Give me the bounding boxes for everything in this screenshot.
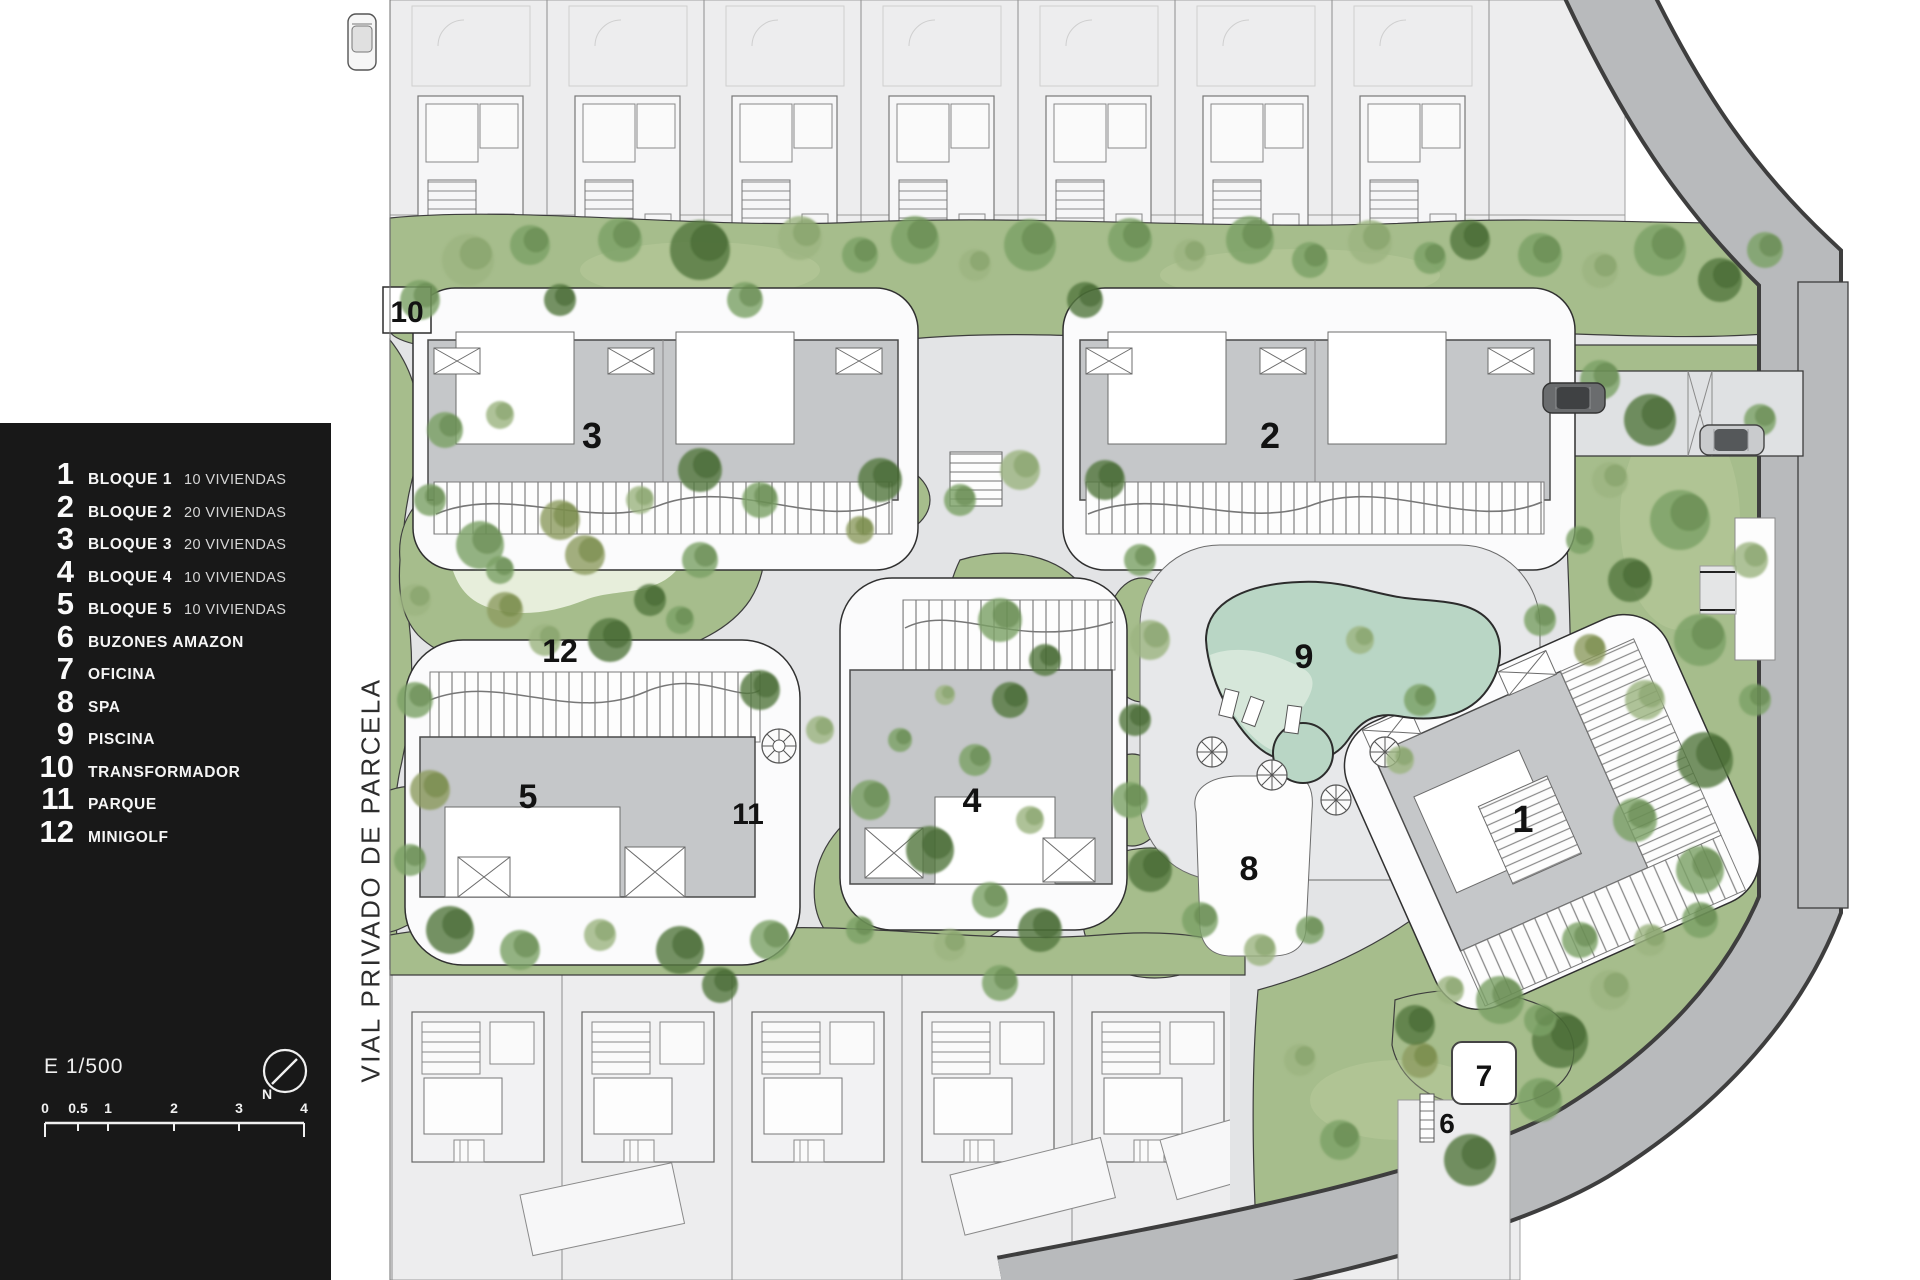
legend-number: 2 xyxy=(0,492,88,522)
tree-icon xyxy=(1590,970,1630,1010)
tree-icon xyxy=(1574,634,1606,666)
tree-icon xyxy=(702,967,738,1003)
tree-icon xyxy=(427,412,463,448)
tree-icon xyxy=(1402,1042,1438,1078)
label-spa: 8 xyxy=(1240,850,1259,888)
tree-icon xyxy=(978,598,1022,642)
legend-item: 10TRANSFORMADOR xyxy=(0,752,331,785)
tree-icon xyxy=(846,916,874,944)
tree-icon xyxy=(1676,846,1724,894)
label-parque: 11 xyxy=(732,798,764,831)
tree-icon xyxy=(1698,258,1742,302)
tree-icon xyxy=(1296,916,1324,944)
scale-bar: 0 0.5 1 2 3 4 xyxy=(36,1095,321,1146)
tree-icon xyxy=(891,216,939,264)
tree-icon xyxy=(598,218,642,262)
tree-icon xyxy=(727,282,763,318)
tree-icon xyxy=(1124,544,1156,576)
tree-icon xyxy=(1739,684,1771,716)
tree-icon xyxy=(906,826,954,874)
tree-icon xyxy=(500,930,540,970)
legend-sublabel: 10 VIVIENDAS xyxy=(184,472,286,488)
legend-label: MINIGOLF xyxy=(88,829,169,847)
tree-icon xyxy=(1592,462,1628,498)
tree-icon xyxy=(846,516,874,544)
legend-number: 12 xyxy=(0,817,88,847)
tree-icon xyxy=(934,929,966,961)
tree-icon xyxy=(656,926,704,974)
tree-icon xyxy=(1004,219,1056,271)
tree-icon xyxy=(959,744,991,776)
tree-icon xyxy=(1244,934,1276,966)
car-icon xyxy=(348,14,376,70)
tree-icon xyxy=(1682,902,1718,938)
tree-icon xyxy=(399,584,431,616)
legend-item: 7OFICINA xyxy=(0,654,331,687)
tree-icon xyxy=(544,284,576,316)
legend-item: 8SPA xyxy=(0,687,331,720)
legend-label: BLOQUE 5 xyxy=(88,601,172,619)
tree-icon xyxy=(1476,976,1524,1024)
tree-icon xyxy=(742,482,778,518)
legend-panel: 1BLOQUE 110 VIVIENDAS 2BLOQUE 220 VIVIEN… xyxy=(0,423,331,1280)
tree-icon xyxy=(540,500,580,540)
tree-icon xyxy=(1067,282,1103,318)
tree-icon xyxy=(806,716,834,744)
tree-icon xyxy=(750,920,790,960)
tree-icon xyxy=(1395,1005,1435,1045)
legend-label: BLOQUE 2 xyxy=(88,504,172,522)
tree-icon xyxy=(1634,924,1666,956)
tree-icon xyxy=(584,919,616,951)
tree-icon xyxy=(634,584,666,616)
tree-icon xyxy=(1674,614,1726,666)
legend-item: 3BLOQUE 320 VIVIENDAS xyxy=(0,524,331,557)
tree-icon xyxy=(678,448,722,492)
legend-item: 1BLOQUE 110 VIVIENDAS xyxy=(0,459,331,492)
tree-icon xyxy=(778,216,822,260)
legend-label: BLOQUE 3 xyxy=(88,536,172,554)
legend-item: 11PARQUE xyxy=(0,784,331,817)
scale-text: E 1/500 xyxy=(44,1055,123,1079)
tree-icon xyxy=(1320,1120,1360,1160)
tree-icon xyxy=(944,484,976,516)
tree-icon xyxy=(1386,746,1414,774)
scale-tick-label: 2 xyxy=(170,1100,178,1116)
tree-icon xyxy=(740,670,780,710)
tree-icon xyxy=(410,770,450,810)
site-plan-page: 3 2 12 5 11 4 9 8 1 10 7 6 1BLOQUE 110 V… xyxy=(0,0,1920,1280)
legend-label: PARQUE xyxy=(88,796,160,814)
tree-icon xyxy=(1414,242,1446,274)
legend-item: 6BUZONES AMAZON xyxy=(0,622,331,655)
tree-icon xyxy=(1677,732,1733,788)
tree-icon xyxy=(1562,922,1598,958)
neighbour-house xyxy=(582,1012,714,1162)
scale-tick-label: 1 xyxy=(104,1100,112,1116)
label-oficina: 7 xyxy=(1476,1060,1493,1093)
car-icon xyxy=(1700,425,1764,455)
parasol-icon xyxy=(1197,737,1227,767)
label-minigolf: 12 xyxy=(542,633,578,669)
legend-item: 12MINIGOLF xyxy=(0,817,331,850)
legend-sublabel: 20 VIVIENDAS xyxy=(184,537,286,553)
tree-icon xyxy=(1608,558,1652,602)
amazon-lockers xyxy=(1420,1094,1434,1142)
legend-number: 8 xyxy=(0,687,88,717)
tree-icon xyxy=(1566,526,1594,554)
tree-icon xyxy=(426,906,474,954)
tree-icon xyxy=(1108,218,1152,262)
tree-icon xyxy=(1650,490,1710,550)
label-block-3: 3 xyxy=(582,415,602,456)
legend-item: 4BLOQUE 410 VIVIENDAS xyxy=(0,557,331,590)
legend-number: 4 xyxy=(0,557,88,587)
tree-icon xyxy=(394,844,426,876)
tree-icon xyxy=(1436,976,1464,1004)
tree-icon xyxy=(510,225,550,265)
label-piscina: 9 xyxy=(1295,638,1314,676)
scale-tick-label: 3 xyxy=(235,1100,243,1116)
legend-number: 3 xyxy=(0,524,88,554)
tree-icon xyxy=(1085,460,1125,500)
parasol-icon xyxy=(1257,760,1287,790)
label-block-5: 5 xyxy=(519,778,538,816)
legend-label: SPA xyxy=(88,699,160,717)
legend-number: 1 xyxy=(0,459,88,489)
tree-icon xyxy=(1518,233,1562,277)
tree-icon xyxy=(666,606,694,634)
tree-icon xyxy=(1634,224,1686,276)
legend-item: 5BLOQUE 510 VIVIENDAS xyxy=(0,589,331,622)
legend-number: 6 xyxy=(0,622,88,652)
tree-icon xyxy=(1284,1044,1316,1076)
tree-icon xyxy=(1119,704,1151,736)
label-block-2: 2 xyxy=(1260,415,1280,456)
tree-icon xyxy=(1582,252,1618,288)
tree-icon xyxy=(1000,450,1040,490)
tree-icon xyxy=(1625,680,1665,720)
tree-icon xyxy=(1182,902,1218,938)
legend-number: 9 xyxy=(0,719,88,749)
tree-icon xyxy=(858,458,902,502)
legend-number: 5 xyxy=(0,589,88,619)
legend-item: 9PISCINA xyxy=(0,719,331,752)
tree-icon xyxy=(1624,394,1676,446)
legend-label: BUZONES AMAZON xyxy=(88,634,244,652)
tree-icon xyxy=(626,486,654,514)
tree-icon xyxy=(842,237,878,273)
tree-icon xyxy=(1016,806,1044,834)
tree-icon xyxy=(1518,1078,1562,1122)
neighbour-house xyxy=(922,1012,1054,1162)
tree-icon xyxy=(1404,684,1436,716)
tree-icon xyxy=(1128,848,1172,892)
street-name-label: VIAL PRIVADO DE PARCELA xyxy=(356,677,387,1082)
legend-number: 11 xyxy=(0,784,88,814)
scale-tick-label: 0.5 xyxy=(68,1100,88,1116)
legend-number: 7 xyxy=(0,654,88,684)
tree-icon xyxy=(397,682,433,718)
tree-icon xyxy=(959,249,991,281)
tree-icon xyxy=(1444,1134,1496,1186)
tree-icon xyxy=(1747,232,1783,268)
label-block-4: 4 xyxy=(963,782,982,820)
legend-label: PISCINA xyxy=(88,731,160,749)
legend-label: OFICINA xyxy=(88,666,160,684)
legend-item: 2BLOQUE 220 VIVIENDAS xyxy=(0,492,331,525)
label-block-1: 1 xyxy=(1512,799,1533,841)
tree-icon xyxy=(1732,542,1768,578)
tree-icon xyxy=(1130,620,1170,660)
legend-sublabel: 20 VIVIENDAS xyxy=(184,505,286,521)
tree-icon xyxy=(1112,782,1148,818)
tree-icon xyxy=(1524,1004,1556,1036)
block-5-building xyxy=(420,672,760,897)
tree-icon xyxy=(1174,239,1206,271)
neighbour-house xyxy=(752,1012,884,1162)
legend-label: BLOQUE 4 xyxy=(88,569,172,587)
tree-icon xyxy=(565,535,605,575)
tree-icon xyxy=(982,965,1018,1001)
tree-icon xyxy=(935,685,955,705)
parasol-icon xyxy=(1321,785,1351,815)
tree-icon xyxy=(1613,798,1657,842)
scale-tick-label: 0 xyxy=(41,1100,49,1116)
tree-icon xyxy=(1018,908,1062,952)
neighbour-house xyxy=(412,1012,544,1162)
tree-icon xyxy=(486,401,514,429)
tree-icon xyxy=(682,542,718,578)
gazebo-icon xyxy=(762,729,796,763)
tree-icon xyxy=(442,234,494,286)
label-transformador: 10 xyxy=(390,296,423,329)
tree-icon xyxy=(972,882,1008,918)
tree-icon xyxy=(414,484,446,516)
legend-number: 10 xyxy=(0,752,88,782)
legend-sublabel: 10 VIVIENDAS xyxy=(184,602,286,618)
tree-icon xyxy=(850,780,890,820)
tree-icon xyxy=(1348,220,1392,264)
tree-icon xyxy=(1524,604,1556,636)
legend-sublabel: 10 VIVIENDAS xyxy=(184,570,286,586)
tree-icon xyxy=(888,728,912,752)
car-icon xyxy=(1543,383,1605,413)
label-buzones: 6 xyxy=(1439,1108,1455,1139)
legend-label: TRANSFORMADOR xyxy=(88,764,240,782)
tree-icon xyxy=(670,220,730,280)
tree-icon xyxy=(588,618,632,662)
tree-icon xyxy=(1226,216,1274,264)
tree-icon xyxy=(1029,644,1061,676)
tree-icon xyxy=(1346,626,1374,654)
scale-tick-label: 4 xyxy=(300,1100,308,1116)
tree-icon xyxy=(1292,242,1328,278)
tree-icon xyxy=(487,592,523,628)
tree-icon xyxy=(992,682,1028,718)
legend-label: BLOQUE 1 xyxy=(88,471,172,489)
tree-icon xyxy=(1450,220,1490,260)
tree-icon xyxy=(486,556,514,584)
